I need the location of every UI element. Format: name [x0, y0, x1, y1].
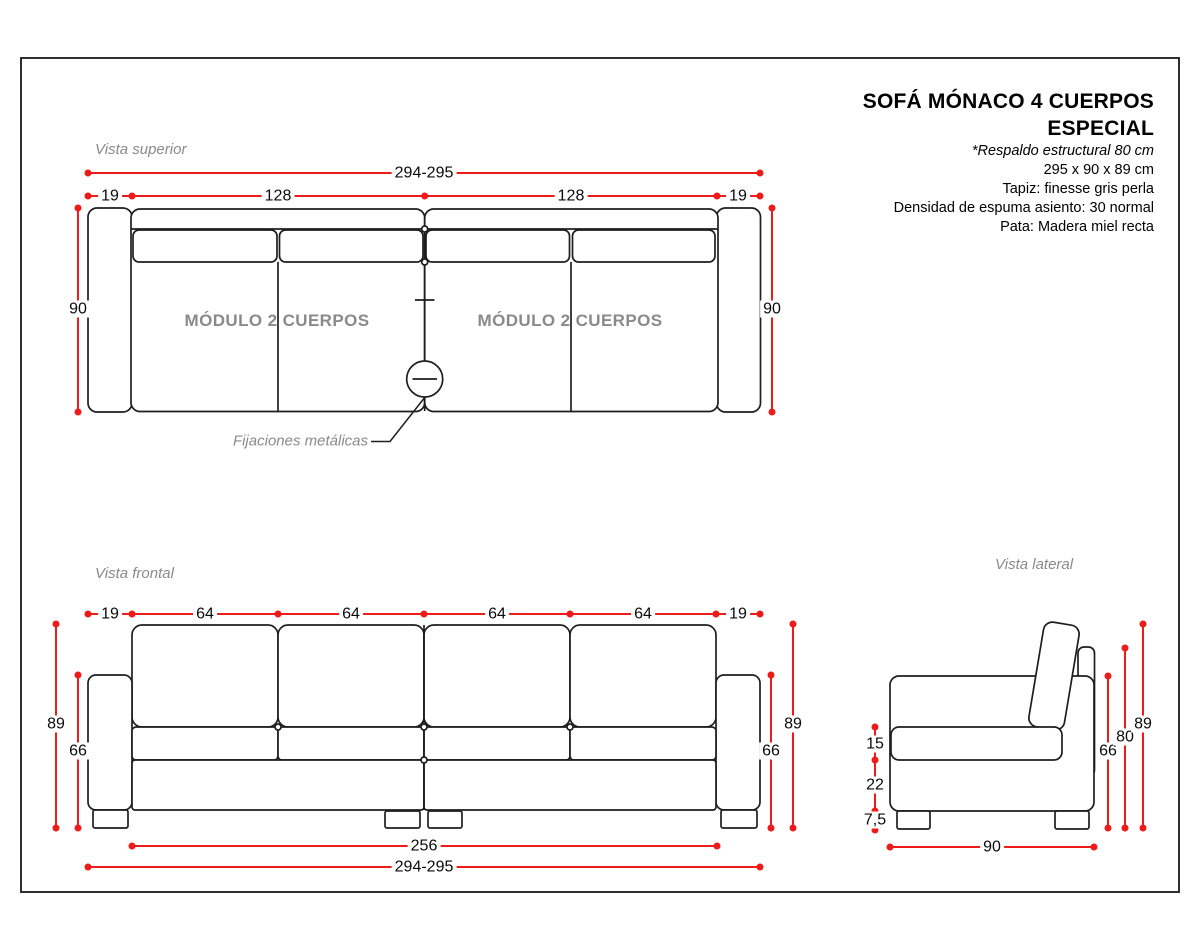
front-view-label: Vista frontal	[95, 565, 174, 582]
front-join-node-4	[421, 757, 427, 763]
front-foot-center-right	[428, 811, 462, 828]
top-back-cushion-3	[426, 230, 570, 262]
front-back-cushion-3	[424, 625, 570, 727]
front-dim-seat-3: 64	[485, 606, 509, 623]
front-dim-overall: 294-295	[392, 859, 457, 876]
side-dim-leg-height: 7,5	[861, 812, 889, 829]
drawing-sheet: SOFÁ MÓNACO 4 CUERPOS ESPECIAL *Respaldo…	[0, 0, 1200, 950]
side-foot-left	[897, 811, 930, 829]
top-dim-module-left: 128	[262, 188, 295, 205]
front-back-cushion-2	[278, 625, 424, 727]
leg-spec-text: Pata: Madera miel recta	[863, 218, 1154, 237]
top-dim-depth-right: 90	[760, 301, 784, 318]
front-foot-left	[93, 810, 128, 828]
side-dim-seat-thickness: 15	[863, 736, 887, 753]
front-seat-cushion-4	[570, 727, 716, 760]
front-base-left	[132, 760, 424, 810]
top-dim-depth-left: 90	[66, 301, 90, 318]
top-dim-arm-right: 19	[726, 188, 750, 205]
top-back-cushion-1	[133, 230, 277, 262]
front-join-node-3	[567, 724, 573, 730]
front-dim-arm-right: 19	[726, 606, 750, 623]
side-view-label: Vista lateral	[995, 556, 1073, 573]
foam-density-text: Densidad de espuma asiento: 30 normal	[863, 199, 1154, 218]
side-dim-total-height: 89	[1131, 716, 1155, 733]
side-dim-base-height: 22	[863, 777, 887, 794]
front-dim-inner-width: 256	[408, 838, 441, 855]
top-center-join-node-lower	[422, 259, 428, 265]
front-dim-height-right: 89	[781, 716, 805, 733]
top-dim-overall: 294-295	[392, 165, 457, 182]
title-block: SOFÁ MÓNACO 4 CUERPOS ESPECIAL *Respaldo…	[863, 88, 1154, 237]
metal-fixings-label: Fijaciones metálicas	[233, 433, 368, 450]
front-foot-right	[721, 810, 757, 828]
front-dim-arm-left: 19	[98, 606, 122, 623]
front-seat-cushion-3	[424, 727, 570, 760]
front-dim-arm-height-right: 66	[759, 743, 783, 760]
front-foot-center-left	[385, 811, 420, 828]
side-foot-right	[1055, 811, 1089, 829]
top-back-cushion-4	[573, 230, 716, 262]
structural-backrest-note: *Respaldo estructural 80 cm	[863, 142, 1154, 161]
top-view-label: Vista superior	[95, 141, 186, 158]
product-title-line1: SOFÁ MÓNACO 4 CUERPOS	[863, 88, 1154, 115]
side-view-drawing	[890, 621, 1095, 829]
front-dim-seat-2: 64	[339, 606, 363, 623]
front-back-cushion-1	[132, 625, 278, 727]
side-seat-cushion	[891, 727, 1062, 760]
front-dim-seat-4: 64	[631, 606, 655, 623]
front-back-cushion-4	[570, 625, 716, 727]
top-center-join-node-upper	[422, 226, 428, 232]
top-armrest-right	[717, 208, 761, 412]
module-left-label: MÓDULO 2 CUERPOS	[185, 311, 370, 331]
top-dim-module-right: 128	[555, 188, 588, 205]
front-armrest-right	[716, 675, 760, 810]
front-dim-arm-height-left: 66	[66, 743, 90, 760]
front-seat-cushion-2	[278, 727, 424, 760]
product-title-line2: ESPECIAL	[863, 115, 1154, 142]
front-dim-height-left: 89	[44, 716, 68, 733]
overall-size-text: 295 x 90 x 89 cm	[863, 161, 1154, 180]
front-view-drawing	[88, 625, 760, 828]
front-seat-cushion-1	[132, 727, 278, 760]
top-armrest-left	[88, 208, 132, 412]
front-dim-seat-1: 64	[193, 606, 217, 623]
side-dim-depth: 90	[980, 839, 1004, 856]
module-right-label: MÓDULO 2 CUERPOS	[478, 311, 663, 331]
front-join-node-1	[275, 724, 281, 730]
upholstery-text: Tapiz: finesse gris perla	[863, 180, 1154, 199]
top-back-cushion-2	[280, 230, 424, 262]
front-join-node-2	[421, 724, 427, 730]
top-dim-arm-left: 19	[98, 188, 122, 205]
front-armrest-left	[88, 675, 132, 810]
front-base-right	[424, 760, 716, 810]
